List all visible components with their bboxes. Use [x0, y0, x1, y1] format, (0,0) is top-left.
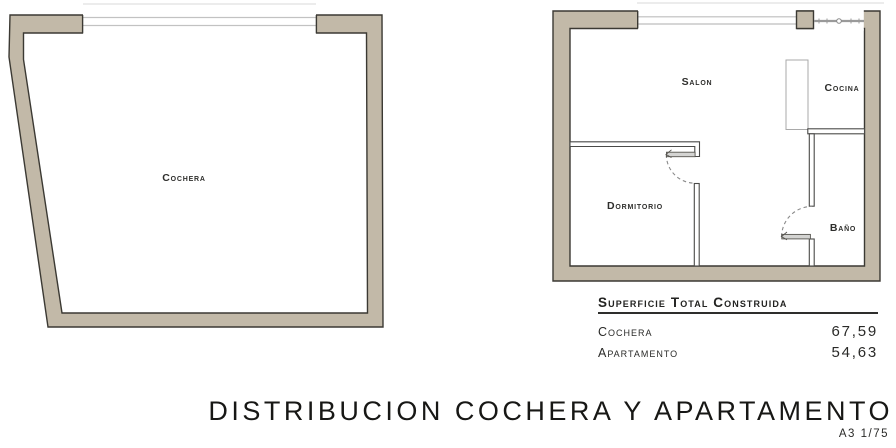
- window-opening: [638, 9, 797, 31]
- interior-wall-bano-upper: [809, 134, 814, 206]
- room-label-salon: Salon: [682, 76, 713, 88]
- window-sill-knob: [837, 19, 842, 24]
- room-label-bano: Baño: [830, 222, 856, 234]
- summary-row-value: 67,59: [831, 323, 878, 340]
- scale-note: A3 1/75: [208, 428, 893, 440]
- door-leaf: [782, 234, 811, 239]
- kitchen-counter: [786, 60, 808, 130]
- garage-door-opening: [83, 13, 316, 35]
- cochera-exterior-walls: [9, 15, 383, 327]
- interior-wall-dormitorio-post: [694, 184, 699, 267]
- window-pier: [797, 11, 814, 29]
- floorplan-canvas: Cochera: [0, 0, 896, 448]
- summary-row-value: 54,63: [831, 344, 878, 361]
- apartment-plan: Salon Cocina Dormitorio Baño: [553, 3, 884, 281]
- summary-row: Apartamento 54,63: [598, 344, 878, 361]
- door-swing-arc: [666, 155, 695, 184]
- summary-rows: Cochera 67,59 Apartamento 54,63: [598, 323, 878, 361]
- interior-wall-bano-lower: [809, 239, 814, 266]
- room-label-cochera: Cochera: [162, 172, 206, 184]
- door-leaf: [667, 152, 696, 157]
- summary-row-label: Apartamento: [598, 346, 678, 360]
- cochera-plan: Cochera: [9, 4, 383, 327]
- room-label-cocina: Cocina: [825, 82, 860, 94]
- summary-heading: Superficie Total Construida: [598, 295, 878, 314]
- drawing-title: DISTRIBUCION COCHERA Y APARTAMENTO: [208, 396, 893, 427]
- summary-row: Cochera 67,59: [598, 323, 878, 340]
- summary-table: Superficie Total Construida Cochera 67,5…: [598, 295, 878, 365]
- drawing-sheet: Cochera: [0, 0, 896, 448]
- title-block: DISTRIBUCION COCHERA Y APARTAMENTO A3 1/…: [208, 396, 893, 440]
- summary-row-label: Cochera: [598, 325, 653, 339]
- interior-wall-bano-top: [808, 129, 865, 134]
- room-label-dormitorio: Dormitorio: [607, 200, 663, 212]
